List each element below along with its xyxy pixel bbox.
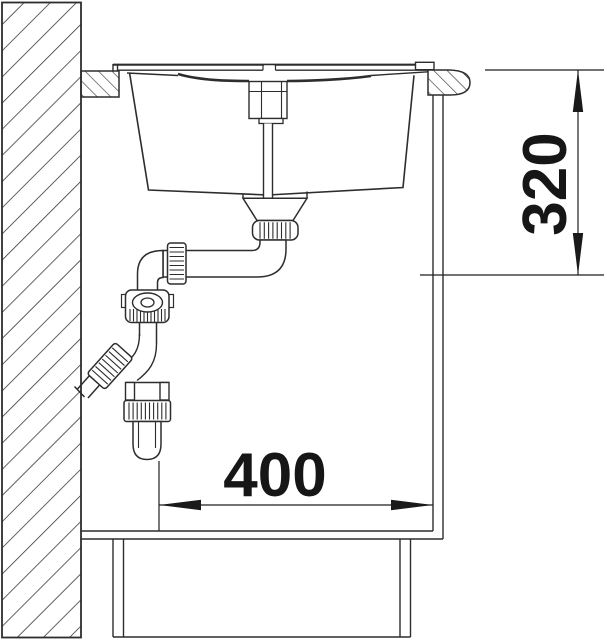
plinth	[113, 539, 411, 637]
trap-cleanout-cap	[122, 290, 174, 323]
base-cabinet	[81, 96, 443, 638]
wall-drain-connection	[75, 342, 133, 398]
arrow-up-icon	[573, 70, 583, 112]
worktop-front-edge	[428, 70, 470, 95]
dimension-depth-label: 320	[511, 132, 580, 235]
trap-cup-nut	[124, 401, 171, 422]
wall-section	[2, 3, 81, 638]
siphon-trap-cup	[124, 383, 171, 460]
control-rod	[264, 124, 273, 206]
control-knob	[263, 65, 276, 71]
drain-elbow	[138, 251, 164, 293]
plumbing	[75, 192, 308, 460]
technical-drawing-canvas: 320 400	[0, 0, 607, 640]
sink-recess-right	[287, 76, 371, 81]
sink	[113, 62, 434, 205]
rim-edge-clip	[416, 62, 435, 69]
dimension-width: 400	[159, 441, 433, 531]
trap-branch-inner	[137, 344, 157, 381]
pipe-union-nut	[168, 243, 187, 284]
sink-deck-right	[371, 72, 428, 76]
wall-hatch	[2, 3, 81, 638]
sink-recess-left	[178, 74, 249, 81]
dimension-width-label: 400	[223, 441, 326, 510]
dimension-depth: 320	[420, 70, 604, 275]
arrow-left-icon	[159, 500, 201, 510]
arrow-down-icon	[573, 233, 583, 275]
sink-installation-drawing: 320 400	[0, 0, 607, 640]
sink-deck-left	[127, 73, 178, 76]
worktop-left-section	[81, 71, 119, 97]
sink-rim	[113, 62, 434, 71]
drain-remote-control	[249, 82, 287, 206]
waste-outlet	[243, 192, 307, 241]
arrow-right-icon	[391, 500, 433, 510]
